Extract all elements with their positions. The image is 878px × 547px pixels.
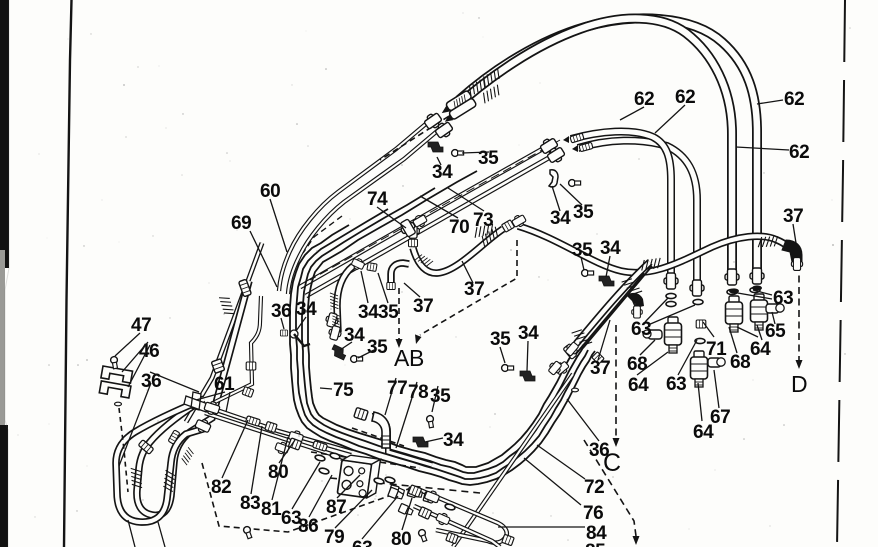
svg-text:37: 37 xyxy=(413,296,433,317)
svg-text:35: 35 xyxy=(573,202,594,223)
svg-text:35: 35 xyxy=(367,337,388,358)
svg-text:85: 85 xyxy=(585,541,606,547)
svg-text:86: 86 xyxy=(298,516,318,537)
svg-text:35: 35 xyxy=(378,302,399,323)
svg-text:72: 72 xyxy=(584,477,604,498)
svg-text:62: 62 xyxy=(675,87,695,108)
svg-text:47: 47 xyxy=(131,315,151,336)
svg-text:71: 71 xyxy=(706,339,727,360)
svg-text:80: 80 xyxy=(391,529,411,547)
svg-text:60: 60 xyxy=(260,181,280,202)
svg-text:C: C xyxy=(603,449,621,477)
svg-text:67: 67 xyxy=(710,407,730,428)
svg-text:68: 68 xyxy=(730,352,750,373)
svg-text:62: 62 xyxy=(789,142,809,163)
svg-text:37: 37 xyxy=(590,358,610,379)
svg-text:64: 64 xyxy=(750,339,771,360)
svg-text:B: B xyxy=(409,345,424,371)
svg-text:70: 70 xyxy=(449,217,469,238)
svg-text:34: 34 xyxy=(600,238,621,259)
svg-text:81: 81 xyxy=(261,499,282,520)
svg-text:34: 34 xyxy=(296,299,317,320)
svg-text:34: 34 xyxy=(518,323,539,344)
svg-text:35: 35 xyxy=(478,148,499,169)
svg-text:62: 62 xyxy=(784,89,804,110)
svg-text:34: 34 xyxy=(443,430,464,451)
svg-text:87: 87 xyxy=(326,497,346,518)
svg-text:63: 63 xyxy=(773,288,793,309)
svg-text:82: 82 xyxy=(211,477,231,498)
svg-text:63: 63 xyxy=(631,319,651,340)
svg-text:68: 68 xyxy=(627,354,647,375)
svg-text:80: 80 xyxy=(268,462,288,483)
svg-text:35: 35 xyxy=(572,240,593,261)
svg-text:37: 37 xyxy=(464,279,484,300)
svg-text:D: D xyxy=(791,371,808,397)
svg-text:76: 76 xyxy=(583,503,603,524)
svg-text:64: 64 xyxy=(628,375,649,396)
svg-text:35: 35 xyxy=(430,386,451,407)
svg-text:75: 75 xyxy=(333,380,354,401)
svg-text:34: 34 xyxy=(432,162,453,183)
svg-text:62: 62 xyxy=(634,89,654,110)
svg-text:63: 63 xyxy=(666,374,686,395)
svg-text:79: 79 xyxy=(324,527,344,547)
svg-text:73: 73 xyxy=(473,210,493,231)
svg-text:83: 83 xyxy=(240,493,260,514)
svg-text:34: 34 xyxy=(358,302,379,323)
svg-text:63: 63 xyxy=(352,538,372,547)
svg-text:37: 37 xyxy=(783,206,803,227)
svg-text:A: A xyxy=(394,345,410,371)
svg-text:36: 36 xyxy=(141,371,161,392)
svg-text:34: 34 xyxy=(344,325,365,346)
svg-text:34: 34 xyxy=(550,208,571,229)
svg-text:69: 69 xyxy=(231,213,251,234)
